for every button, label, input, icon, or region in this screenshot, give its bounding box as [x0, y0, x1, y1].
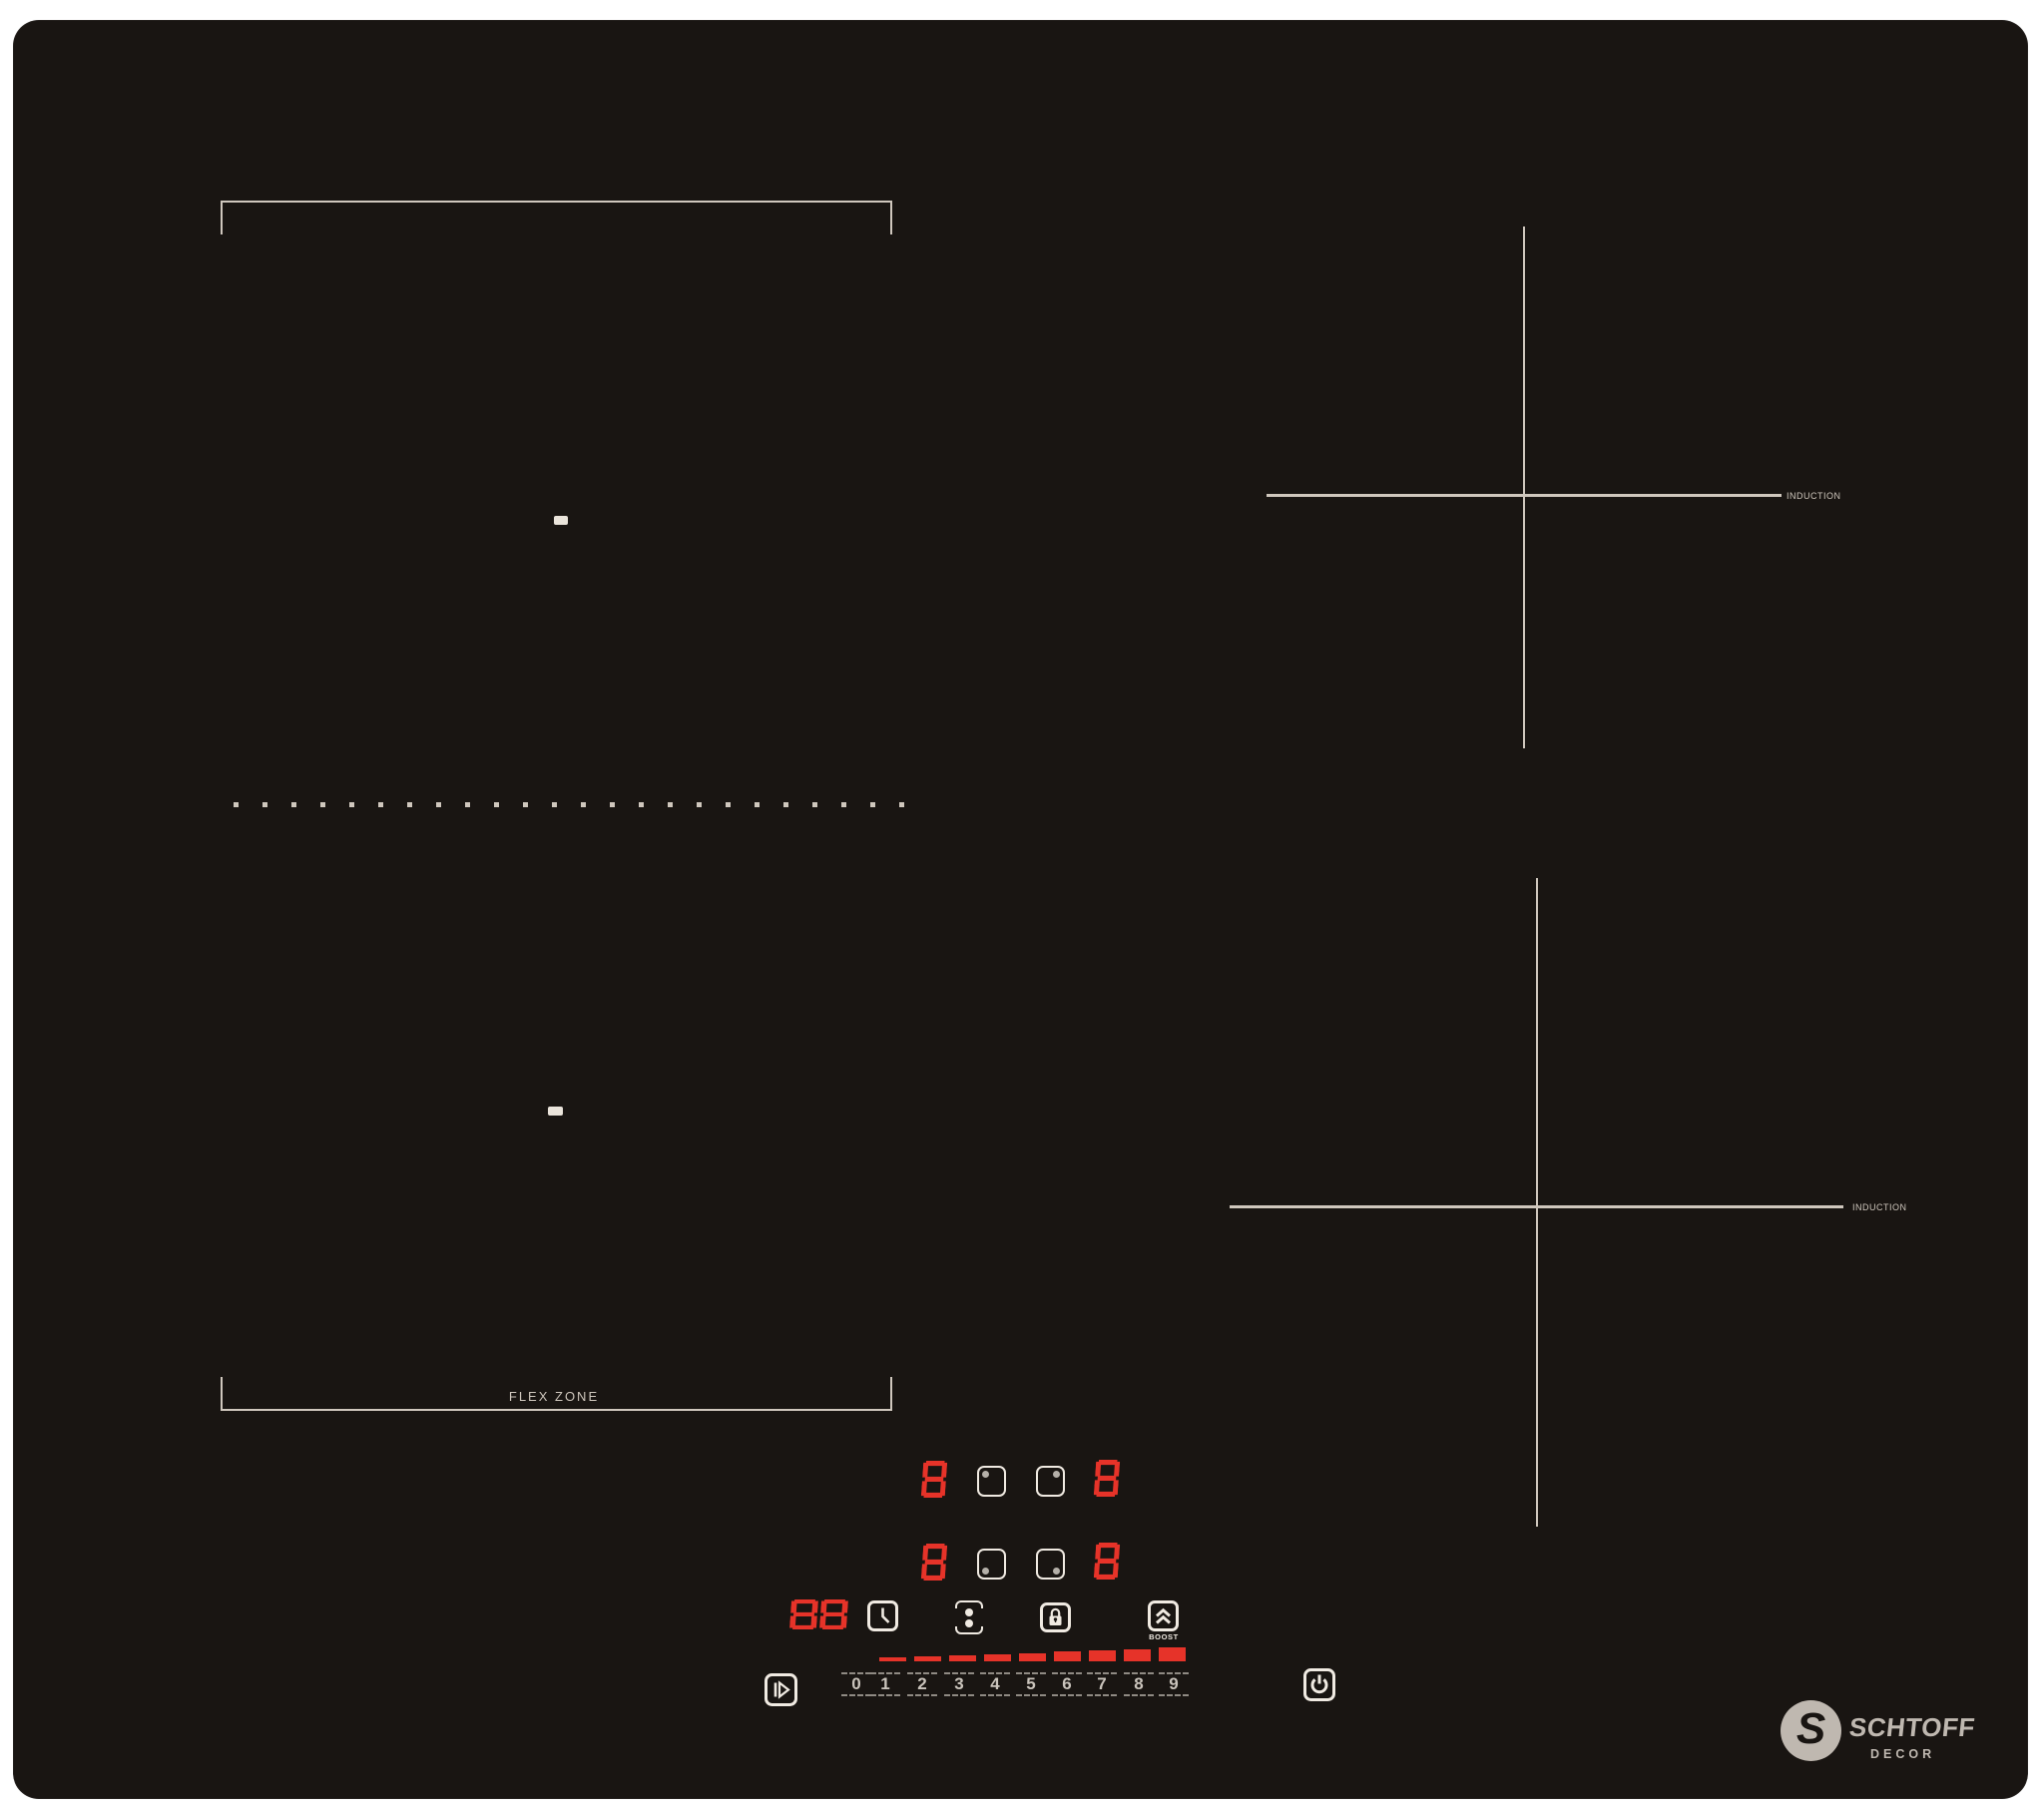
- rear-left-power-display: [922, 1461, 946, 1498]
- flex-zone-top-bracket: [221, 201, 892, 234]
- zone-select-key-front-left[interactable]: [977, 1549, 1006, 1580]
- power-bar-seg-3: [949, 1655, 976, 1661]
- power-level-label: 8: [1134, 1674, 1143, 1693]
- front-left-dot-icon: [982, 1568, 989, 1575]
- front-right-dot-icon: [1053, 1568, 1060, 1575]
- zone-bridge-key[interactable]: [955, 1600, 983, 1634]
- brand-subtitle: DECOR: [1870, 1747, 1935, 1761]
- power-level-label: 5: [1026, 1674, 1035, 1693]
- power-level-label: 4: [990, 1674, 999, 1693]
- power-bar-seg-1: [879, 1657, 906, 1661]
- power-bar-seg-6: [1054, 1651, 1081, 1661]
- pause-key[interactable]: [765, 1673, 797, 1711]
- power-bar-seg-7: [1089, 1650, 1116, 1661]
- power-level-key-1[interactable]: 1: [870, 1672, 900, 1696]
- timer-display: [790, 1599, 847, 1629]
- flex-zone-rear-center-mark: [554, 516, 568, 525]
- zone-select-key-rear-right[interactable]: [1036, 1466, 1065, 1497]
- flex-zone-label: FLEX ZONE: [474, 1389, 634, 1404]
- lock-icon: [1040, 1602, 1071, 1632]
- bridge-rear-dot-icon: [965, 1608, 973, 1616]
- front-right-zone-vline: [1536, 878, 1538, 1527]
- power-level-key-3[interactable]: 3: [944, 1672, 974, 1696]
- power-bar-seg-5: [1019, 1653, 1046, 1661]
- brand-name: SCHTOFF: [1847, 1712, 1976, 1743]
- rear-right-zone-label: INDUCTION: [1787, 491, 1841, 501]
- power-level-key-9[interactable]: 9: [1159, 1672, 1189, 1696]
- brand-monogram-icon: S: [1781, 1700, 1841, 1761]
- product-image: FLEX ZONE INDUCTION INDUCTION: [0, 0, 2044, 1814]
- rear-right-zone-vline: [1523, 227, 1525, 748]
- rear-left-dot-icon: [982, 1471, 989, 1478]
- boost-chevrons-icon: [1148, 1600, 1179, 1631]
- timer-key[interactable]: [867, 1600, 898, 1636]
- power-key[interactable]: [1303, 1668, 1335, 1706]
- zone-select-key-front-right[interactable]: [1036, 1549, 1065, 1580]
- power-level-label: 6: [1062, 1674, 1071, 1693]
- power-level-label: 0: [851, 1674, 860, 1693]
- front-right-zone-label: INDUCTION: [1852, 1202, 1907, 1212]
- power-level-key-0[interactable]: 0: [841, 1672, 871, 1696]
- power-bar-seg-9: [1159, 1647, 1186, 1661]
- clock-icon: [867, 1600, 898, 1631]
- bridge-front-dot-icon: [965, 1619, 973, 1627]
- cooktop-surface: FLEX ZONE INDUCTION INDUCTION: [13, 20, 2028, 1799]
- power-bar-seg-4: [984, 1654, 1011, 1661]
- power-icon: [1303, 1668, 1335, 1701]
- front-right-power-display: [1095, 1543, 1119, 1580]
- power-level-key-4[interactable]: 4: [980, 1672, 1010, 1696]
- power-level-label: 2: [917, 1674, 926, 1693]
- power-level-label: 3: [954, 1674, 963, 1693]
- flex-zone-front-center-mark: [548, 1107, 563, 1116]
- power-level-key-8[interactable]: 8: [1124, 1672, 1154, 1696]
- lock-key[interactable]: [1040, 1602, 1071, 1637]
- power-level-key-5[interactable]: 5: [1016, 1672, 1046, 1696]
- power-level-label: 9: [1169, 1674, 1178, 1693]
- boost-key[interactable]: [1148, 1600, 1179, 1636]
- power-level-key-7[interactable]: 7: [1087, 1672, 1117, 1696]
- zone-select-key-rear-left[interactable]: [977, 1466, 1006, 1497]
- power-level-label: 7: [1097, 1674, 1106, 1693]
- rear-right-power-display: [1095, 1460, 1119, 1497]
- power-level-key-6[interactable]: 6: [1052, 1672, 1082, 1696]
- pause-play-icon: [765, 1673, 797, 1706]
- front-left-power-display: [922, 1544, 946, 1581]
- bridge-top-bracket-icon: [955, 1600, 983, 1608]
- power-bar-seg-2: [914, 1656, 941, 1661]
- rear-right-dot-icon: [1053, 1471, 1060, 1478]
- boost-label: BOOST: [1144, 1632, 1184, 1641]
- bridge-bottom-bracket-icon: [955, 1626, 983, 1634]
- power-level-key-2[interactable]: 2: [907, 1672, 937, 1696]
- flex-zone-dotted-divider: [234, 802, 908, 807]
- power-bar-seg-8: [1124, 1649, 1151, 1661]
- power-level-label: 1: [880, 1674, 889, 1693]
- power-level-bar: [879, 1647, 1187, 1661]
